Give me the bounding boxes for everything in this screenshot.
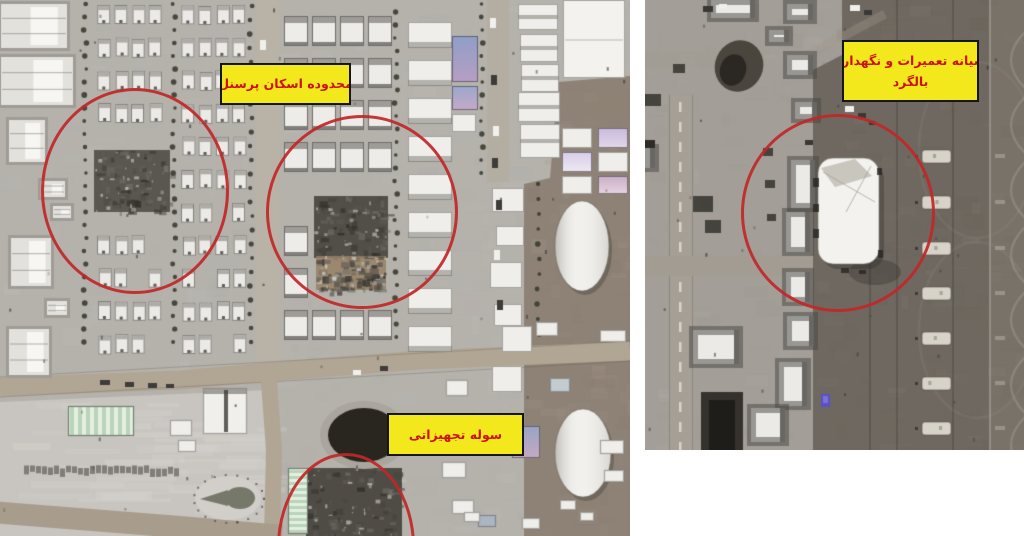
annotation-label-helicopter-hangar: آشیانه تعمیرات و نگهداری بالگرد: [842, 40, 979, 102]
satellite-panel-airfield: آشیانه تعمیرات و نگهداری بالگرد: [645, 0, 1024, 450]
annotation-label-text-line2: بالگرد: [893, 74, 929, 90]
satellite-panel-base-camp: محدوده اسکان پرسنل سوله تجهیزاتی: [0, 0, 630, 536]
annotation-label-text: سوله تجهیزاتی: [409, 427, 502, 443]
annotation-label-text-line1: آشیانه تعمیرات و نگهداری: [842, 53, 979, 69]
annotation-circle-personnel-west: [41, 88, 229, 294]
annotation-label-text: محدوده اسکان پرسنل: [220, 76, 351, 92]
annotation-circle-hangar: [741, 114, 935, 312]
annotation-circle-personnel-center: [266, 115, 458, 309]
annotation-label-personnel-area: محدوده اسکان پرسنل: [220, 63, 351, 105]
annotation-label-equipment-shed: سوله تجهیزاتی: [387, 413, 524, 456]
annotated-satellite-figure: محدوده اسکان پرسنل سوله تجهیزاتی آشیانه …: [0, 0, 1024, 536]
